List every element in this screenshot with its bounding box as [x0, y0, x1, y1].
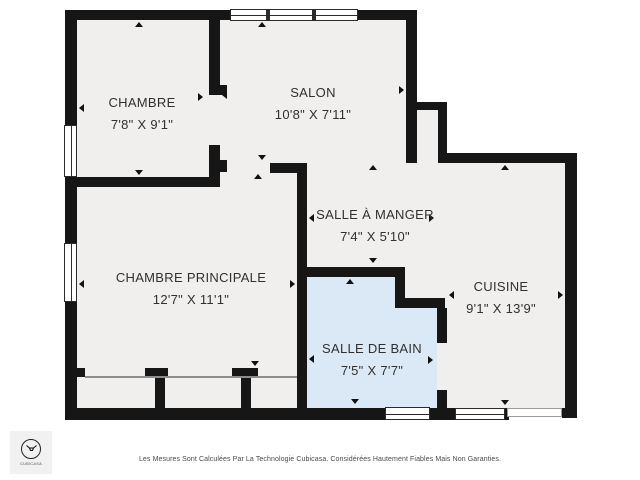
- measure-arrow: [309, 214, 314, 222]
- wall-kitchen-top: [447, 153, 577, 163]
- measure-arrow: [258, 155, 266, 160]
- drone-icon: [26, 445, 37, 453]
- measure-arrow: [399, 86, 404, 94]
- measure-arrow: [501, 165, 509, 170]
- room-name: SALLE DE BAIN: [322, 338, 422, 360]
- room-dims: 12'7" X 11'1": [116, 289, 266, 311]
- room-label-salle-a-manger: SALLE À MANGER 7'4" X 5'10": [316, 204, 434, 248]
- measure-arrow: [346, 279, 354, 284]
- window-mullion: [266, 9, 270, 21]
- measure-arrow: [79, 104, 84, 112]
- closet-cap-left: [77, 368, 85, 377]
- measure-arrow: [251, 361, 259, 366]
- room-dims: 7'4" X 5'10": [316, 226, 434, 248]
- door-jamb: [220, 160, 227, 172]
- measure-arrow: [198, 93, 203, 101]
- room-name: SALLE À MANGER: [316, 204, 434, 226]
- measure-arrow: [369, 258, 377, 263]
- room-label-salle-de-bain: SALLE DE BAIN 7'5" X 7'7": [322, 338, 422, 382]
- wall-bathroom-notch-horiz: [405, 298, 445, 308]
- disclaimer-text: Les Mesures Sont Calculées Par La Techno…: [0, 456, 640, 463]
- wall-chambre-bottom: [65, 177, 220, 187]
- closet-stub-1: [155, 377, 165, 408]
- room-name: CUISINE: [466, 276, 536, 298]
- cubicasa-logo: CUBICASA: [10, 431, 52, 474]
- window-bathroom-bottom: [385, 407, 430, 420]
- wall-bathroom-right-lower: [437, 390, 447, 408]
- room-dims: 10'8" X 7'11": [275, 104, 351, 126]
- wall-chambre-divider-upper: [209, 10, 220, 95]
- measure-arrow: [309, 355, 314, 363]
- measure-arrow: [369, 165, 377, 170]
- closet-stub-2: [241, 377, 251, 408]
- window-mullion: [312, 9, 316, 21]
- sliding-door-opening: [507, 408, 562, 417]
- room-name: CHAMBRE: [108, 92, 175, 114]
- wall-left: [65, 10, 77, 420]
- room-dims: 7'5" X 7'7": [322, 360, 422, 382]
- measure-arrow: [79, 280, 84, 288]
- room-label-cuisine: CUISINE 9'1" X 13'9": [466, 276, 536, 320]
- window-principale-left: [64, 243, 77, 302]
- wall-center-vertical: [297, 163, 307, 408]
- window-kitchen-bottom: [455, 408, 505, 420]
- measure-arrow: [428, 356, 433, 364]
- measure-arrow: [258, 22, 266, 27]
- wall-bathroom-top: [305, 267, 405, 277]
- measure-arrow: [254, 174, 262, 179]
- room-label-chambre: CHAMBRE 7'8" X 9'1": [108, 92, 175, 136]
- wall-alcove-top: [406, 102, 447, 110]
- wall-top-left: [65, 10, 230, 20]
- window-chambre-left: [64, 125, 77, 177]
- room-dims: 9'1" X 13'9": [466, 298, 536, 320]
- measure-arrow: [558, 291, 563, 299]
- closet-front-line: [85, 376, 297, 378]
- room-name: SALON: [275, 82, 351, 104]
- wall-bottom-mid: [428, 408, 455, 420]
- measure-arrow: [222, 91, 227, 99]
- measure-arrow: [290, 280, 295, 288]
- measure-arrow: [501, 400, 509, 405]
- wall-bottom-left: [65, 408, 385, 420]
- wall-salon-right: [406, 10, 417, 163]
- measure-arrow: [135, 170, 143, 175]
- wall-right: [565, 153, 577, 417]
- measure-arrow: [351, 399, 359, 404]
- wall-alcove-right: [438, 110, 447, 163]
- measure-arrow: [135, 22, 143, 27]
- room-label-chambre-principale: CHAMBRE PRINCIPALE 12'7" X 11'1": [116, 267, 266, 311]
- room-name: CHAMBRE PRINCIPALE: [116, 267, 266, 289]
- measure-arrow: [449, 291, 454, 299]
- room-label-salon: SALON 10'8" X 7'11": [275, 82, 351, 126]
- wall-bathroom-notch-vert: [395, 277, 405, 308]
- window-top: [230, 9, 358, 21]
- floor-plan: CHAMBRE 7'8" X 9'1" SALON 10'8" X 7'11" …: [0, 0, 640, 480]
- wall-bathroom-right-upper: [437, 308, 447, 343]
- room-dims: 7'8" X 9'1": [108, 114, 175, 136]
